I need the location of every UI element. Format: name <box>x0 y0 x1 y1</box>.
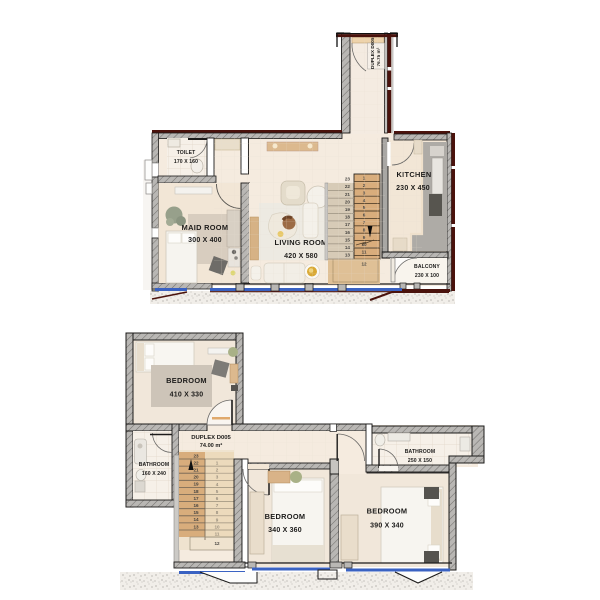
svg-text:BALCONY: BALCONY <box>414 264 440 270</box>
svg-text:230 X 100: 230 X 100 <box>415 273 439 279</box>
svg-text:170 X 160: 170 X 160 <box>174 159 198 165</box>
svg-text:5: 5 <box>216 489 219 494</box>
svg-text:19: 19 <box>193 482 199 487</box>
svg-text:23: 23 <box>193 453 199 458</box>
svg-text:TOILET: TOILET <box>177 150 196 156</box>
svg-text:BEDROOM: BEDROOM <box>367 507 408 516</box>
svg-text:11: 11 <box>215 532 220 537</box>
svg-text:22: 22 <box>193 460 199 465</box>
svg-text:18: 18 <box>193 489 199 494</box>
svg-text:DUPLEX D005: DUPLEX D005 <box>191 435 231 441</box>
svg-text:17: 17 <box>193 496 199 501</box>
svg-text:14: 14 <box>193 517 199 522</box>
svg-text:BATHROOM: BATHROOM <box>139 462 169 468</box>
svg-text:21: 21 <box>193 468 199 473</box>
svg-text:BEDROOM: BEDROOM <box>265 512 306 521</box>
svg-text:340 X 360: 340 X 360 <box>268 527 302 534</box>
svg-text:74.00 m²: 74.00 m² <box>200 442 223 449</box>
svg-text:15: 15 <box>193 510 199 515</box>
svg-text:6: 6 <box>216 496 219 501</box>
svg-text:410 X 330: 410 X 330 <box>170 392 204 399</box>
svg-text:BATHROOM: BATHROOM <box>405 449 435 455</box>
svg-text:8: 8 <box>216 510 219 515</box>
svg-text:160 X 240: 160 X 240 <box>142 471 166 477</box>
svg-text:250 X 150: 250 X 150 <box>408 458 432 464</box>
svg-text:9: 9 <box>216 517 219 522</box>
svg-text:3: 3 <box>216 475 219 480</box>
svg-text:7: 7 <box>216 503 219 508</box>
svg-text:16: 16 <box>193 503 199 508</box>
svg-text:10: 10 <box>214 524 220 529</box>
svg-text:1: 1 <box>216 461 219 466</box>
svg-text:20: 20 <box>193 475 199 480</box>
svg-text:390 X 340: 390 X 340 <box>370 523 404 530</box>
svg-text:BEDROOM: BEDROOM <box>166 376 207 385</box>
svg-text:4: 4 <box>216 482 219 487</box>
svg-text:12: 12 <box>214 541 220 546</box>
svg-text:2: 2 <box>216 468 219 473</box>
svg-text:13: 13 <box>193 524 199 529</box>
